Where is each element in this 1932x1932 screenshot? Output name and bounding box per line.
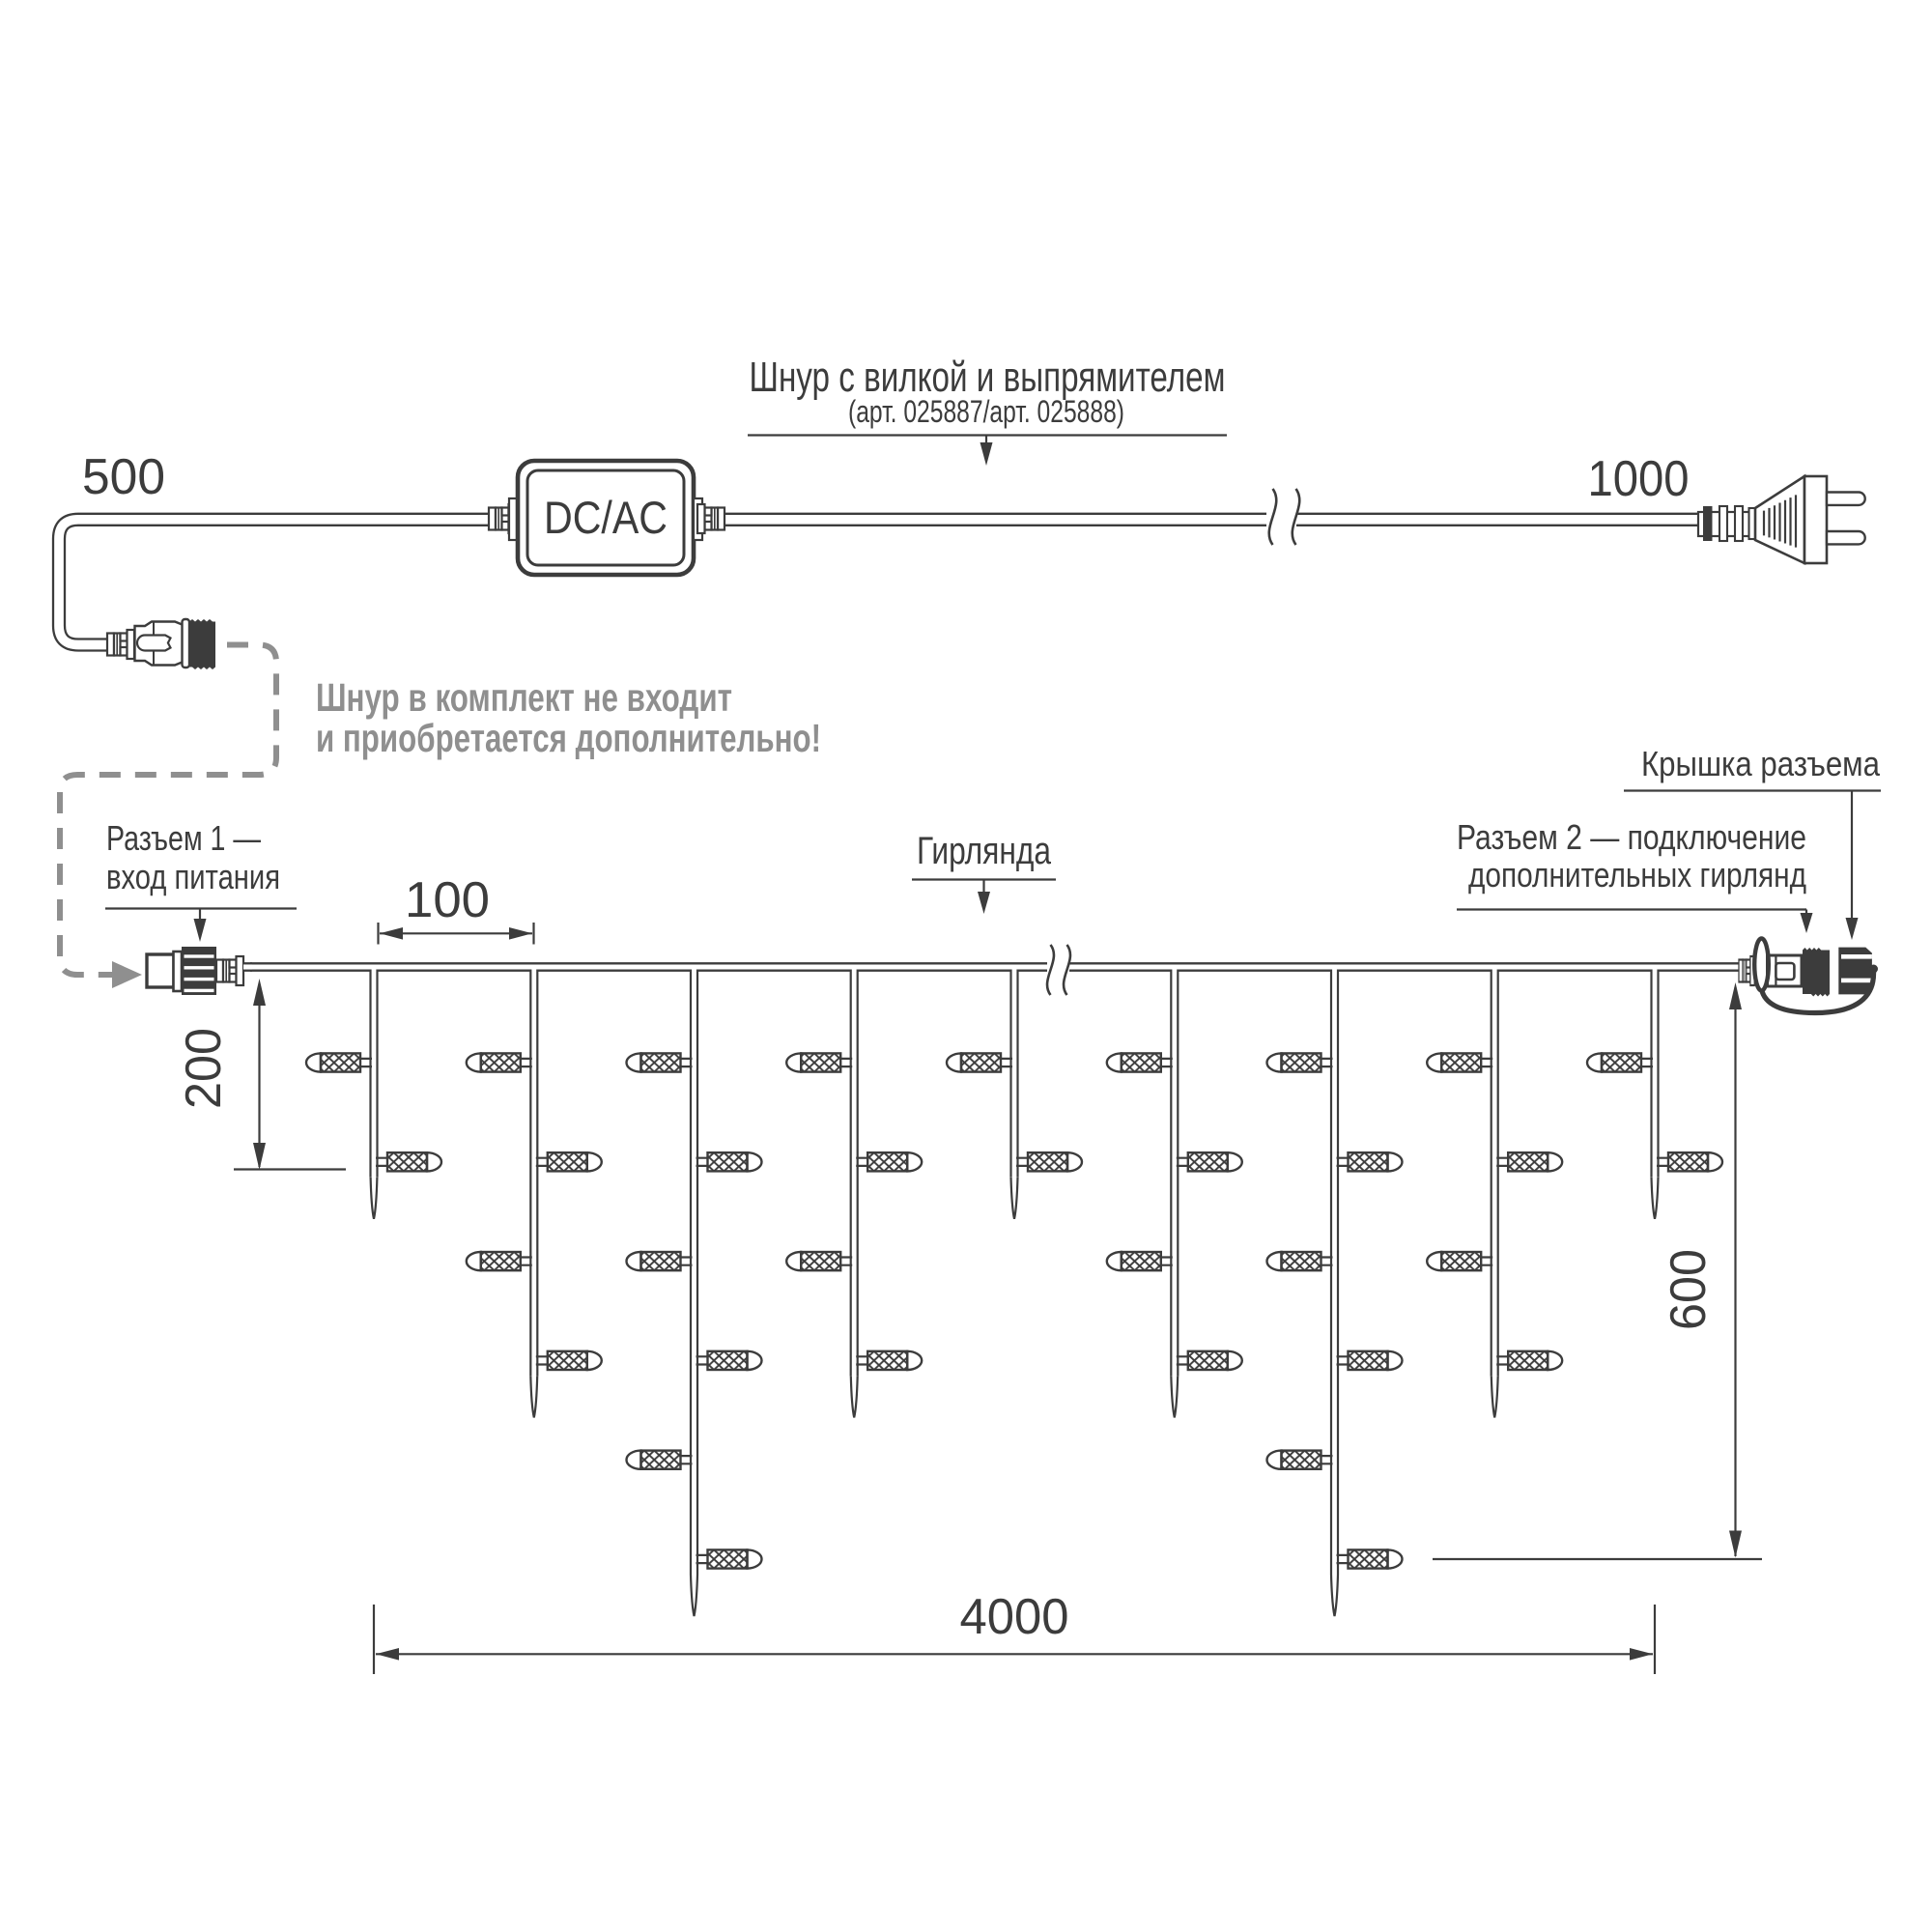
svg-text:вход питания: вход питания [106, 857, 280, 896]
svg-text:Разъем 2 — подключение: Разъем 2 — подключение [1457, 817, 1806, 857]
svg-text:600: 600 [1661, 1249, 1717, 1330]
svg-text:Шнур в комплект не входит: Шнур в комплект не входит [316, 675, 732, 720]
svg-text:Разъем 1 —: Разъем 1 — [106, 818, 261, 858]
svg-text:500: 500 [82, 449, 165, 505]
svg-text:и приобретается дополнительно!: и приобретается дополнительно! [316, 716, 821, 760]
svg-text:1000: 1000 [1588, 451, 1690, 507]
svg-text:4000: 4000 [960, 1589, 1069, 1645]
svg-text:DC/AC: DC/AC [544, 492, 668, 543]
svg-text:Гирлянда: Гирлянда [917, 830, 1052, 872]
svg-text:дополнительных гирлянд: дополнительных гирлянд [1468, 855, 1806, 895]
svg-text:100: 100 [405, 872, 490, 928]
svg-text:Крышка разъема: Крышка разъема [1641, 744, 1881, 783]
svg-text:200: 200 [176, 1028, 232, 1109]
svg-text:(арт. 025887/арт. 025888): (арт. 025887/арт. 025888) [848, 394, 1124, 429]
